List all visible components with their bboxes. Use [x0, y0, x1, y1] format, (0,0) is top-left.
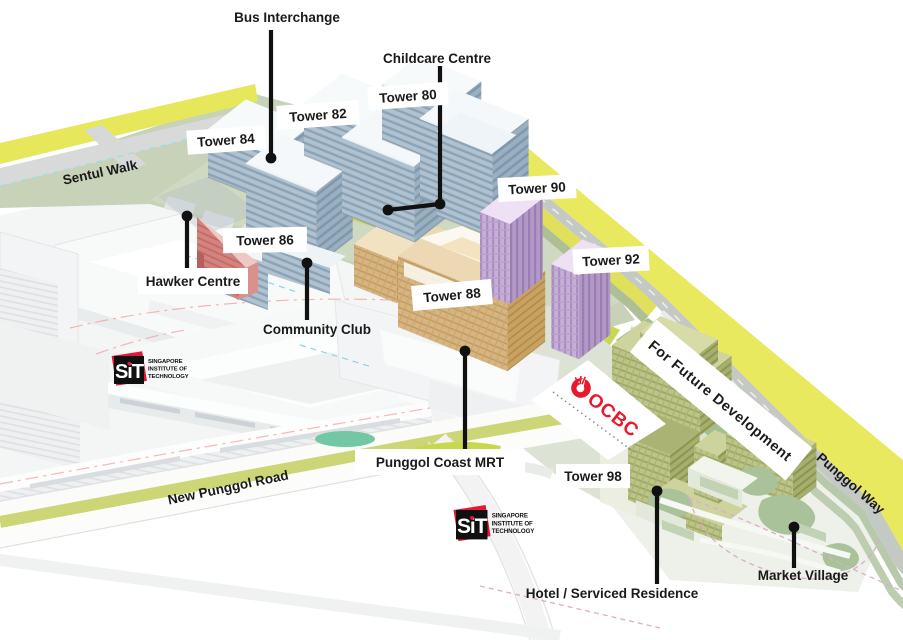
svg-text:Tower 92: Tower 92: [582, 251, 640, 269]
svg-text:TECHNOLOGY: TECHNOLOGY: [492, 528, 536, 535]
svg-text:Hotel / Serviced Residence: Hotel / Serviced Residence: [526, 586, 699, 601]
svg-text:SINGAPORE: SINGAPORE: [492, 513, 528, 520]
svg-text:Market Village: Market Village: [758, 568, 849, 583]
svg-text:Tower 86: Tower 86: [236, 232, 294, 248]
svg-text:Punggol Coast MRT: Punggol Coast MRT: [376, 455, 505, 470]
svg-text:TECHNOLOGY: TECHNOLOGY: [148, 374, 189, 380]
svg-text:INSTITUTE OF: INSTITUTE OF: [492, 520, 533, 527]
svg-text:Tower 98: Tower 98: [564, 469, 622, 484]
svg-text:Tower 90: Tower 90: [508, 179, 566, 197]
svg-text:Bus Interchange: Bus Interchange: [234, 10, 340, 25]
svg-text:Community Club: Community Club: [263, 322, 371, 337]
svg-text:Childcare Centre: Childcare Centre: [383, 51, 492, 66]
svg-text:INSTITUTE OF: INSTITUTE OF: [148, 367, 188, 373]
svg-text:Hawker Centre: Hawker Centre: [146, 274, 241, 289]
svg-text:SINGAPORE: SINGAPORE: [148, 359, 183, 365]
